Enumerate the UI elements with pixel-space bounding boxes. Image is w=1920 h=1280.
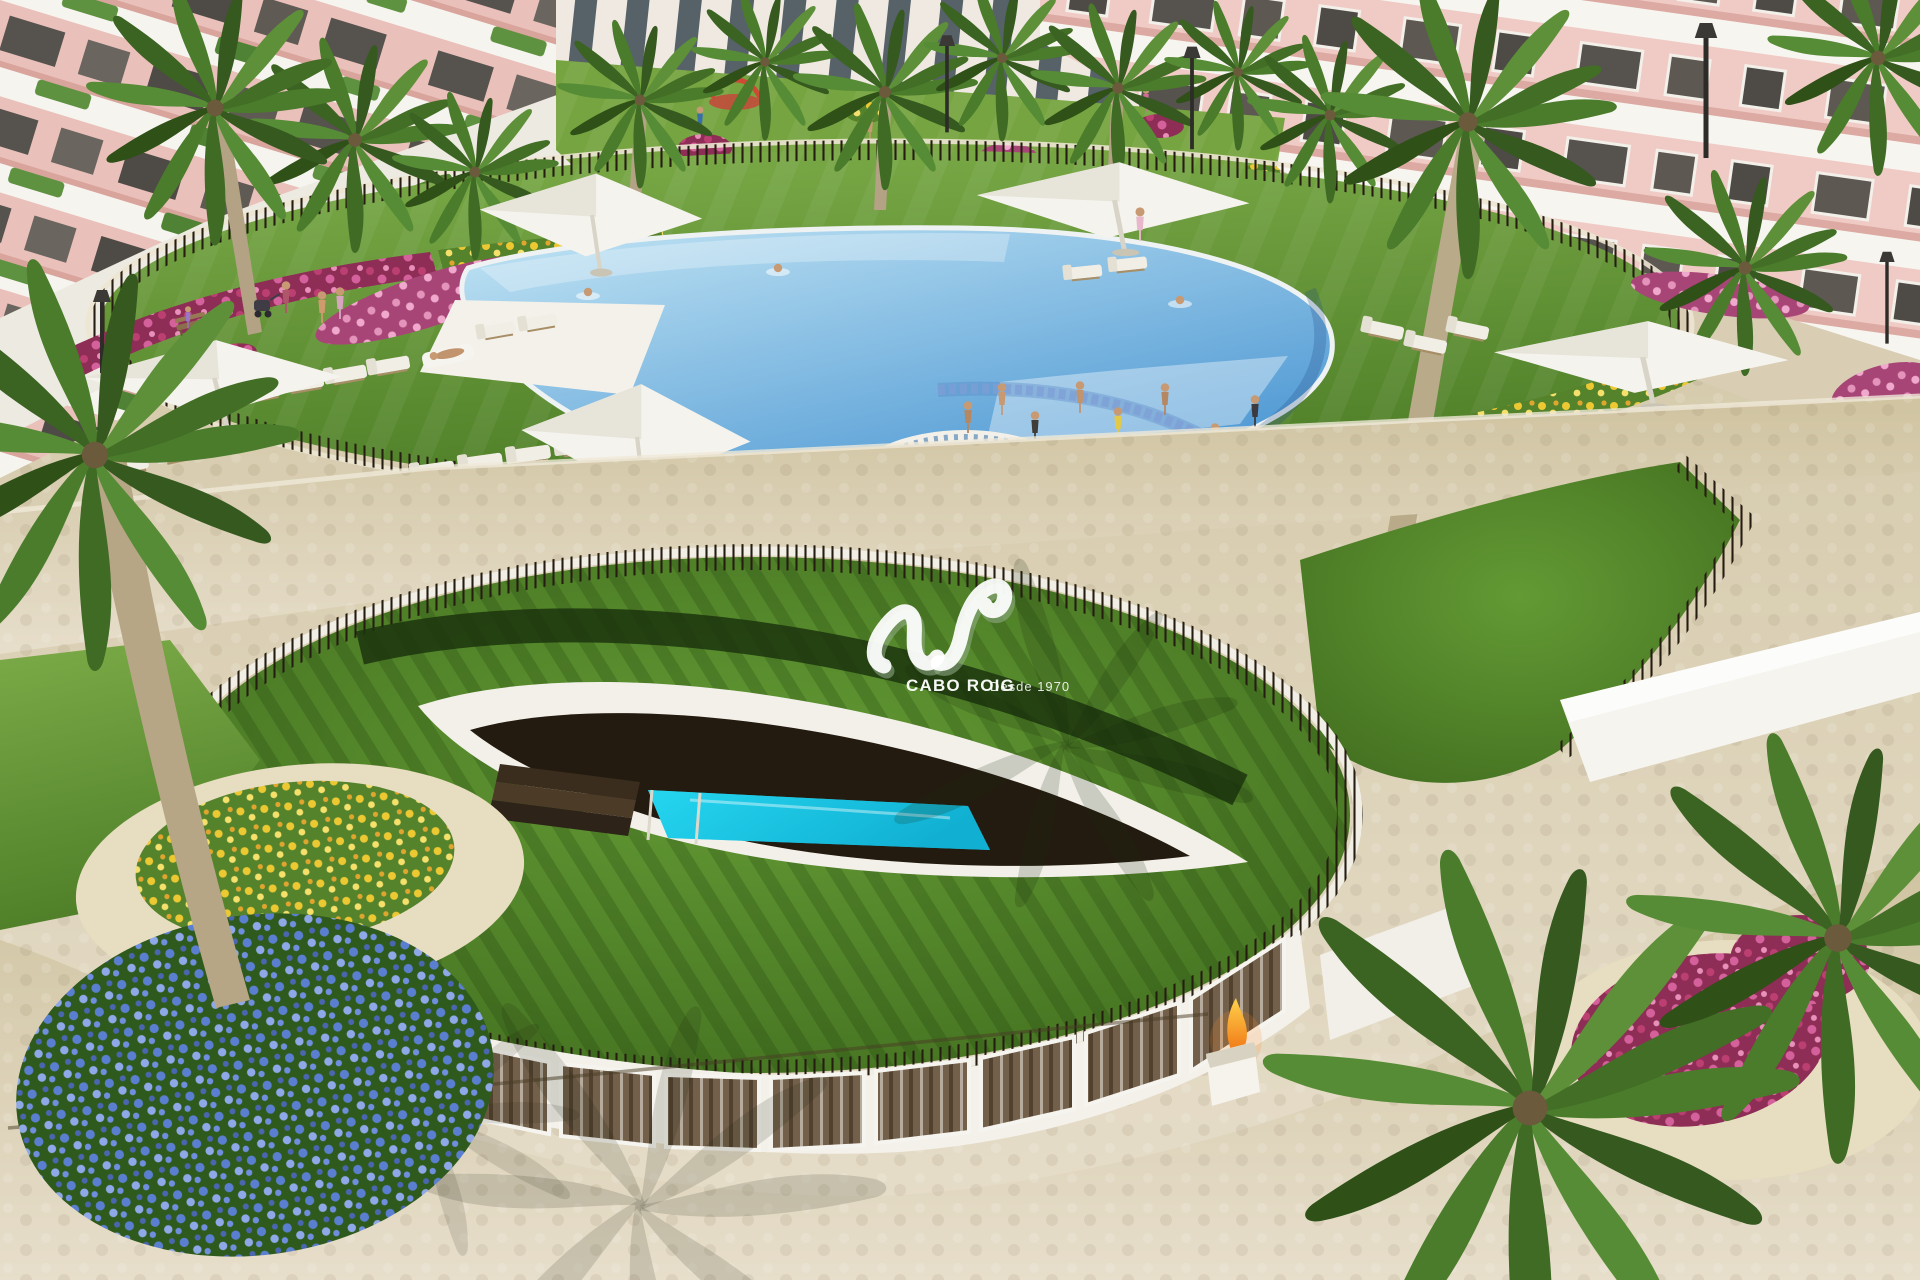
glass-panel	[876, 1060, 969, 1143]
pool-resort-render: CABO ROIG Desde 1970	[0, 0, 1920, 1280]
resort-scene: CABO ROIG Desde 1970	[0, 0, 1920, 1280]
brand-tagline: Desde 1970	[990, 679, 1070, 694]
